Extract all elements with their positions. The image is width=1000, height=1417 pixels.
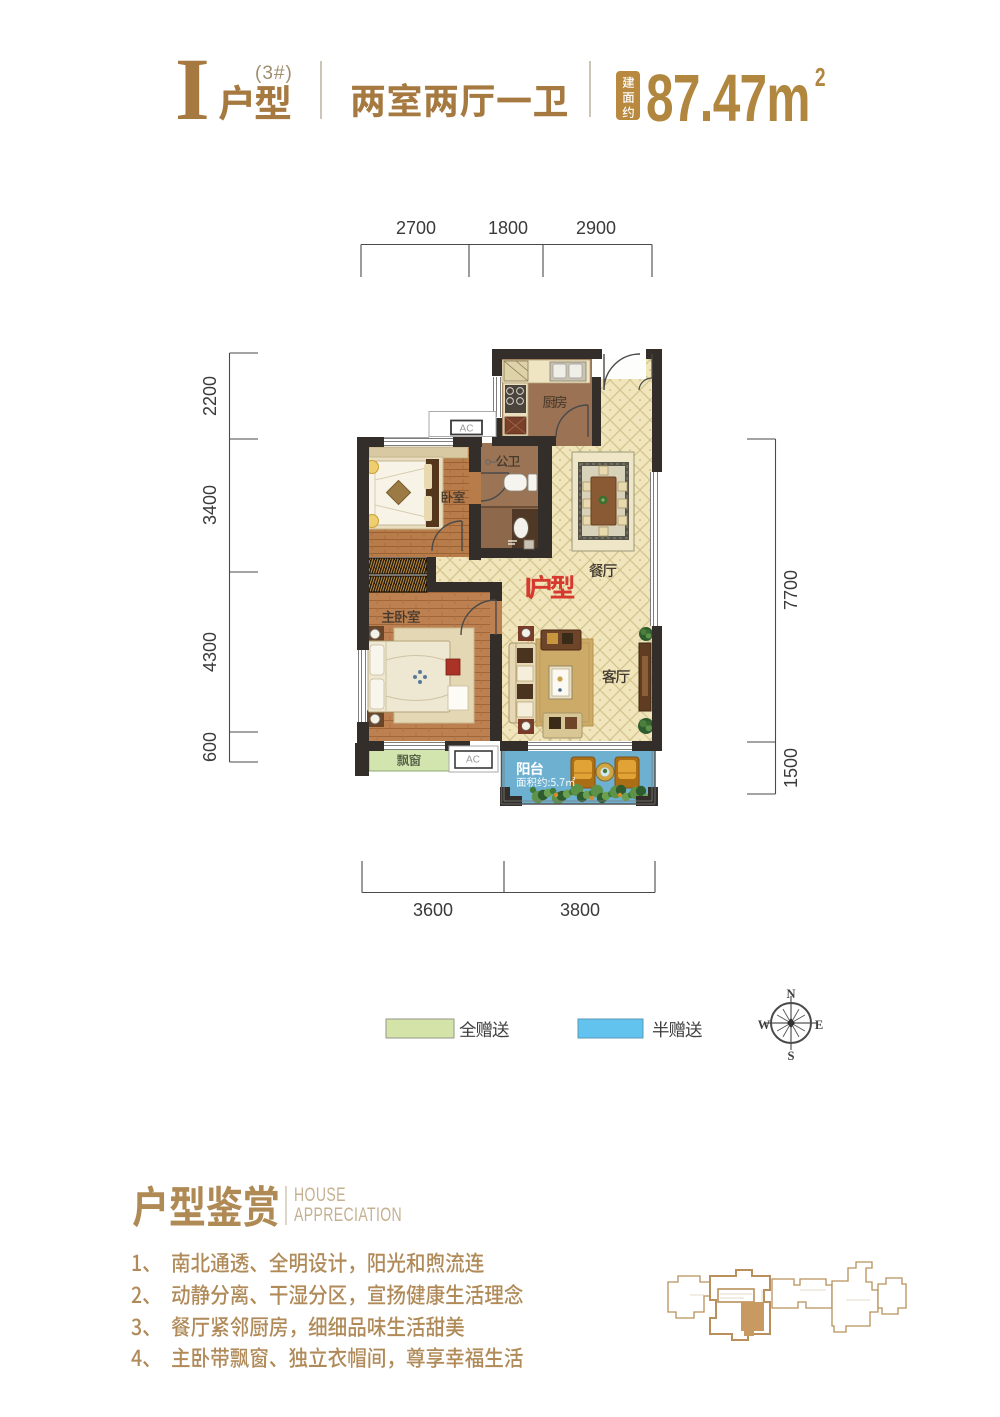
svg-text:3600: 3600 bbox=[413, 900, 453, 920]
svg-text:2700: 2700 bbox=[396, 218, 436, 238]
svg-text:600: 600 bbox=[200, 732, 220, 762]
svg-text:1800: 1800 bbox=[488, 218, 528, 238]
svg-text:E: E bbox=[815, 1018, 823, 1032]
svg-text:2200: 2200 bbox=[200, 376, 220, 416]
svg-text:N: N bbox=[786, 987, 795, 1001]
svg-text:AC: AC bbox=[460, 424, 474, 435]
svg-text:3800: 3800 bbox=[560, 900, 600, 920]
svg-text:4300: 4300 bbox=[200, 632, 220, 672]
svg-text:S: S bbox=[788, 1049, 795, 1063]
svg-text:AC: AC bbox=[466, 755, 480, 766]
svg-text:3400: 3400 bbox=[200, 485, 220, 525]
svg-text:2900: 2900 bbox=[576, 218, 616, 238]
svg-text:1500: 1500 bbox=[781, 748, 801, 788]
svg-text:W: W bbox=[758, 1018, 771, 1032]
svg-text:7700: 7700 bbox=[781, 570, 801, 610]
